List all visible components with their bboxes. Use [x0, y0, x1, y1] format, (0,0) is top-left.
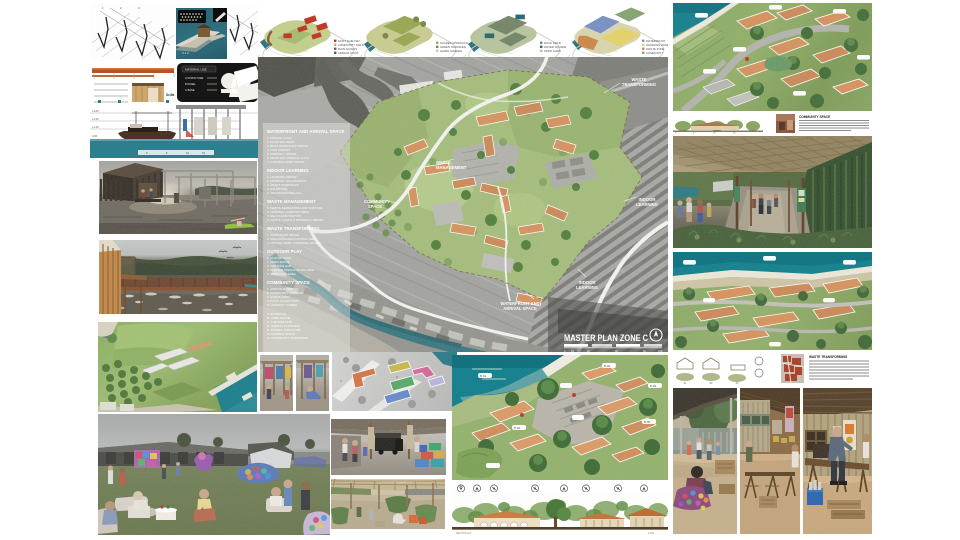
svg-text:3. DRYING YARD / STORAGE / FIL: 3. DRYING YARD / STORAGE / FILLER — [267, 241, 321, 245]
svg-text:+4.00: +4.00 — [92, 109, 99, 113]
svg-text:20: 20 — [733, 132, 736, 134]
svg-text:WASTE MANAGEMENT: WASTE MANAGEMENT — [267, 199, 316, 204]
svg-text:WATERFRONT AND ARRIVAL SPACE: WATERFRONT AND ARRIVAL SPACE — [267, 129, 344, 134]
svg-text:COMMUNITY: COMMUNITY — [646, 51, 663, 55]
svg-text:0 1 2: 0 1 2 — [182, 51, 189, 55]
svg-text:LEARN GARDEN: LEARN GARDEN — [440, 49, 462, 53]
svg-text:OPEN LAWN: OPEN LAWN — [544, 49, 561, 53]
svg-text:COMMUNITY SPACE: COMMUNITY SPACE — [799, 115, 830, 119]
svg-text:S1: S1 — [684, 382, 688, 385]
svg-text:C BASE: C BASE — [185, 88, 195, 92]
svg-text:5. LOOKOUT TOWER: 5. LOOKOUT TOWER — [267, 303, 298, 307]
svg-text:SECTION A-A': SECTION A-A' — [456, 532, 472, 535]
svg-text:1:200: 1:200 — [648, 532, 655, 535]
svg-text:0: 0 — [675, 132, 677, 134]
svg-text:5. SAND PLAY AREA: 5. SAND PLAY AREA — [267, 272, 296, 276]
svg-text:2: 2 — [120, 6, 122, 10]
svg-text:3: 3 — [138, 6, 140, 10]
svg-text:4. WASTE CHECK & MATERIAL LIBR: 4. WASTE CHECK & MATERIAL LIBRARY — [267, 218, 324, 222]
svg-text:+1.20: +1.20 — [92, 125, 99, 129]
svg-text:WASTE TRANSFORMING: WASTE TRANSFORMING — [267, 226, 320, 231]
svg-text:WASTE TRANSFORMING: WASTE TRANSFORMING — [809, 355, 848, 359]
svg-text:MASTER PLAN ZONE C: MASTER PLAN ZONE C — [564, 333, 648, 344]
svg-text:ARRIVAL DOCK: ARRIVAL DOCK — [338, 51, 359, 55]
svg-text:S3: S3 — [736, 382, 740, 385]
svg-text:Scilla: Scilla — [166, 93, 175, 97]
svg-text:MATERIAL USE: MATERIAL USE — [185, 68, 207, 72]
svg-text:100: 100 — [658, 349, 663, 352]
svg-text:0.00: 0.00 — [92, 134, 98, 138]
svg-text:S2: S2 — [710, 382, 714, 385]
svg-text:7. FLEXIBLE OPEN SPACE: 7. FLEXIBLE OPEN SPACE — [267, 160, 304, 164]
svg-text:A STRUCTURE: A STRUCTURE — [185, 76, 204, 80]
svg-text:5. MULTIPURPOSE HALL: 5. MULTIPURPOSE HALL — [267, 191, 302, 195]
svg-text:OUTDOOR PLAY: OUTDOOR PLAY — [267, 249, 302, 254]
svg-text:5: 5 — [693, 132, 695, 134]
svg-text:G. COMMUNITY WORKSHOP: G. COMMUNITY WORKSHOP — [267, 336, 308, 340]
svg-text:COMMUNITY SPACE: COMMUNITY SPACE — [267, 280, 310, 285]
svg-text:1: 1 — [102, 6, 104, 10]
svg-text:10: 10 — [713, 132, 716, 134]
svg-text:INDOOR LEARNING: INDOOR LEARNING — [267, 168, 309, 173]
svg-text:+2.50: +2.50 — [92, 117, 99, 121]
svg-text:B PANEL: B PANEL — [185, 82, 196, 86]
